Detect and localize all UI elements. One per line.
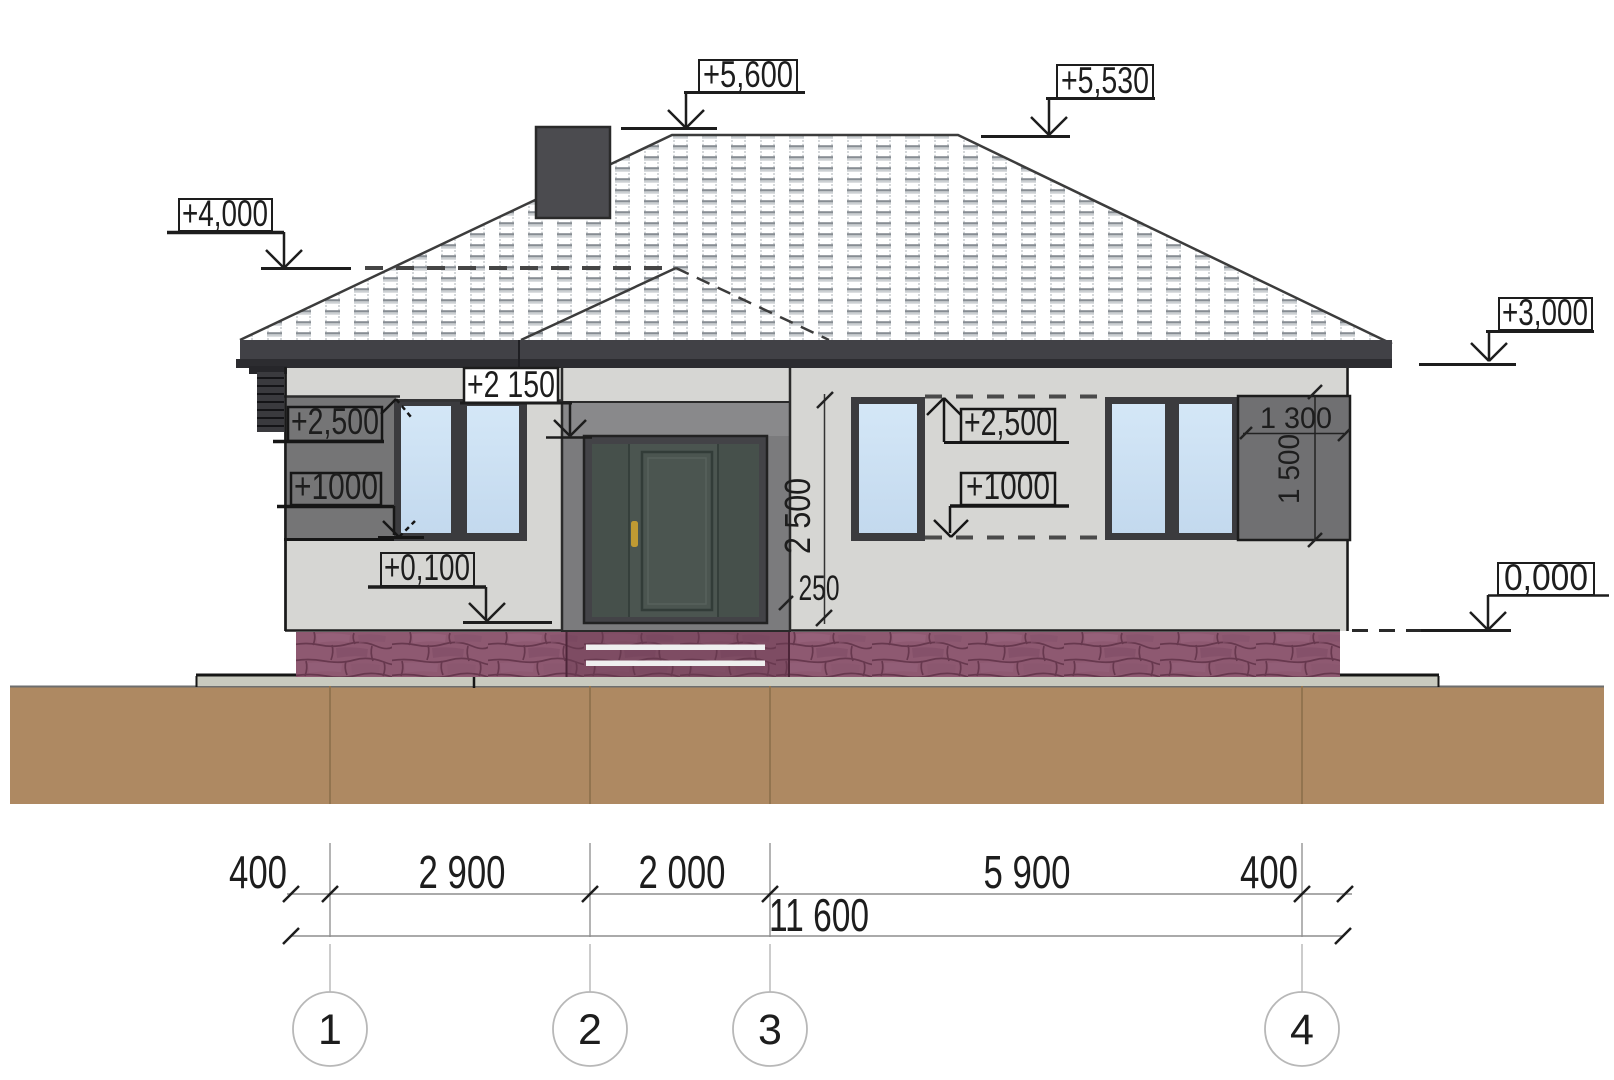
- svg-text:+2 150: +2 150: [467, 364, 555, 405]
- svg-text:1: 1: [318, 1006, 342, 1054]
- svg-text:11 600: 11 600: [769, 889, 869, 941]
- svg-text:250: 250: [799, 569, 840, 608]
- svg-text:3: 3: [758, 1006, 782, 1054]
- svg-text:0,000: 0,000: [1504, 557, 1588, 598]
- svg-text:+3,000: +3,000: [1502, 292, 1588, 333]
- svg-text:+0,100: +0,100: [384, 547, 470, 588]
- svg-text:400: 400: [229, 846, 287, 898]
- svg-text:+1000: +1000: [294, 466, 378, 507]
- svg-text:2: 2: [578, 1006, 602, 1054]
- svg-text:+5,600: +5,600: [703, 54, 793, 95]
- svg-text:+4,000: +4,000: [182, 193, 268, 234]
- svg-text:2 000: 2 000: [639, 846, 726, 898]
- svg-text:+1000: +1000: [966, 466, 1050, 507]
- svg-text:+2,500: +2,500: [291, 401, 379, 442]
- svg-text:5 900: 5 900: [984, 846, 1071, 898]
- svg-text:4: 4: [1290, 1006, 1314, 1054]
- svg-text:2 900: 2 900: [419, 846, 506, 898]
- svg-text:1 500: 1 500: [1273, 434, 1306, 504]
- svg-text:+2,500: +2,500: [964, 402, 1052, 443]
- svg-text:400: 400: [1240, 846, 1298, 898]
- svg-text:1 300: 1 300: [1260, 402, 1332, 435]
- svg-text:2 500: 2 500: [777, 478, 818, 554]
- svg-text:+5,530: +5,530: [1061, 60, 1149, 101]
